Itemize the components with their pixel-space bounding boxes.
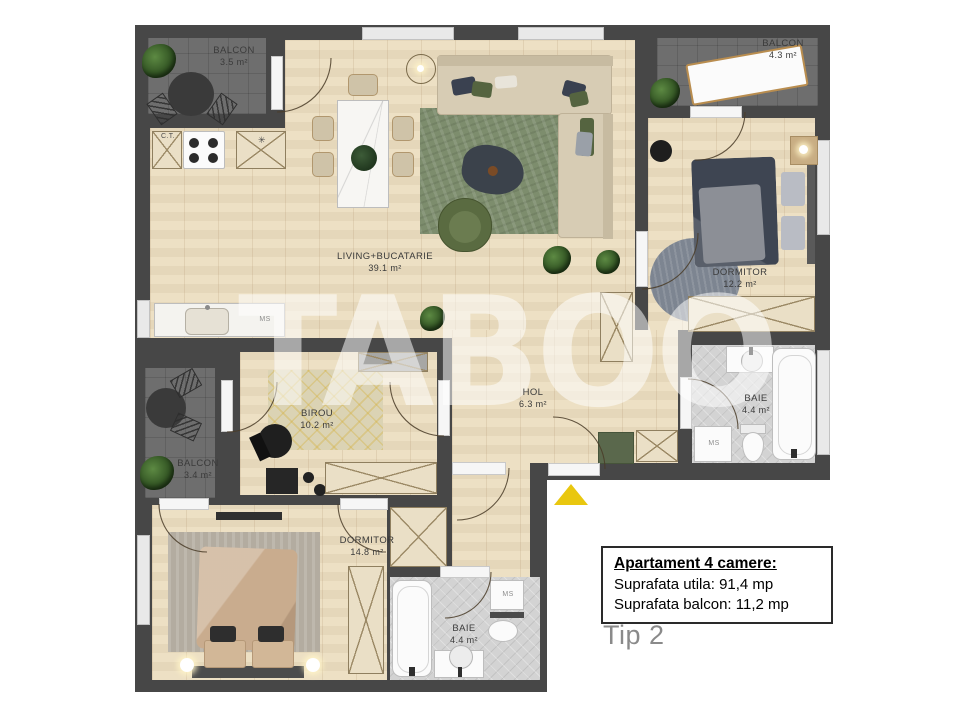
bed-double [693, 158, 815, 268]
dishwasher-label: MS [245, 316, 285, 323]
burner [208, 153, 218, 163]
dining-chair [392, 152, 414, 177]
label-bedroom-bottom: DORMITOR 14.8 m² [292, 535, 442, 559]
bed-blanket [698, 184, 765, 264]
bathroom-sink [434, 650, 484, 678]
room-hall-corridor [452, 463, 530, 578]
office-desk [266, 468, 298, 494]
office-dresser [358, 352, 428, 372]
bathtub-tap [409, 667, 415, 676]
bathroom-sink [726, 346, 774, 373]
bed-pillow [204, 640, 246, 668]
kitchen-sink-counter: MS [154, 303, 285, 337]
tv-bench [216, 512, 282, 520]
window-bedroom-right [817, 140, 830, 235]
floor-plan-canvas: C.T. ✳ MS [0, 0, 962, 720]
label-living-kitchen: LIVING+BUCATARIE 39.1 m² [305, 251, 465, 275]
window-living-top-2 [518, 27, 604, 40]
dining-chair [392, 116, 414, 141]
hall-closet [600, 292, 633, 362]
lamp-bulb [417, 65, 424, 72]
door-bedroom-right [636, 231, 648, 287]
sink-basin [449, 645, 473, 669]
faucet [749, 347, 753, 355]
door-entrance [548, 463, 600, 476]
night-light [180, 658, 194, 672]
washer-label: MS [695, 440, 733, 447]
sofa-cushion [471, 81, 493, 99]
label-bathroom-bottom: BAIE 4.4 m² [414, 623, 514, 647]
burner [189, 138, 199, 148]
bed-pillow-small [210, 626, 236, 642]
door-balcony-left-bedroom [159, 498, 209, 510]
usable-area-line: Suprafata utila: 91,4 mp [614, 576, 820, 593]
bedroom-chair [650, 140, 672, 162]
label-hall: HOL 6.3 m² [483, 387, 583, 411]
office-stool [303, 472, 314, 483]
kitchen-cabinet-ct: C.T. [152, 131, 182, 169]
apartment-info-box: Apartament 4 camere: Suprafata utila: 91… [601, 546, 833, 624]
sofa-cushion [495, 75, 518, 89]
table-decor [487, 165, 499, 177]
door-office-balcony [221, 380, 233, 432]
washing-machine: MS [490, 580, 524, 610]
apartment-title: Apartament 4 camere: [614, 555, 820, 573]
lamp-bulb [799, 145, 808, 154]
type-label: Tip 2 [603, 620, 665, 651]
door-hall-corridor [452, 462, 506, 475]
door-office [438, 380, 450, 436]
dining-island [337, 100, 389, 208]
label-balcony-left: BALCON 3.4 m² [153, 458, 243, 482]
dining-chair [312, 116, 334, 141]
window-bedroom-bottom-left [137, 535, 150, 625]
door-balcony-top-right [690, 106, 742, 118]
label-office: BIROU 10.2 m² [267, 408, 367, 432]
dining-chair [312, 152, 334, 177]
night-light [306, 658, 320, 672]
wardrobe-bedroom-bottom [348, 566, 384, 674]
pendant-lamp [406, 54, 436, 84]
wardrobe-bedroom-right [688, 296, 815, 332]
label-bathroom-right: BAIE 4.4 m² [706, 393, 806, 417]
kitchen-sink [185, 308, 229, 335]
bed-double [196, 548, 300, 678]
bed-pillow [252, 640, 294, 668]
kitchen-cabinet-star: ✳ [236, 131, 286, 169]
office-sideboard [325, 462, 437, 494]
central-heating-label: C.T. [153, 133, 183, 140]
fruit-bowl [351, 145, 377, 171]
door-bathroom-right [680, 377, 692, 429]
armchair-seat [449, 211, 481, 243]
headboard [807, 160, 815, 264]
bed-pillow-small [258, 626, 284, 642]
balcony-area-line: Suprafata balcon: 11,2 mp [614, 596, 820, 613]
sofa-backrest [438, 56, 613, 66]
burner [208, 138, 218, 148]
faucet [458, 667, 462, 677]
bed-pillow [781, 216, 805, 250]
sofa-backrest [603, 114, 613, 239]
faucet [205, 305, 210, 310]
bathtub-tap [791, 449, 797, 458]
entrance-arrow [554, 484, 588, 505]
armchair [438, 198, 492, 252]
bath-counter [490, 612, 524, 618]
shoe-cabinet [636, 430, 678, 462]
entrance-mat [598, 432, 634, 464]
door-bathroom-bottom [440, 566, 490, 578]
sofa-throw [575, 131, 593, 156]
dining-chair [348, 74, 378, 96]
window-kitchen-left [137, 300, 150, 338]
bed-pillow [781, 172, 805, 206]
window-bathroom-right [817, 350, 830, 455]
label-balcony-top-left: BALCON 3.5 m² [189, 45, 279, 69]
burner [189, 153, 199, 163]
stove [183, 131, 225, 169]
label-balcony-top-right: BALCON 4.3 m² [738, 38, 828, 62]
washing-machine: MS [694, 426, 732, 462]
star-label: ✳ [237, 135, 287, 146]
washer-label: MS [491, 591, 525, 598]
nightstand [790, 136, 818, 165]
label-bedroom-right: DORMITOR 12.2 m² [665, 267, 815, 291]
window-living-top-1 [362, 27, 454, 40]
door-bedroom-bottom [340, 498, 388, 510]
